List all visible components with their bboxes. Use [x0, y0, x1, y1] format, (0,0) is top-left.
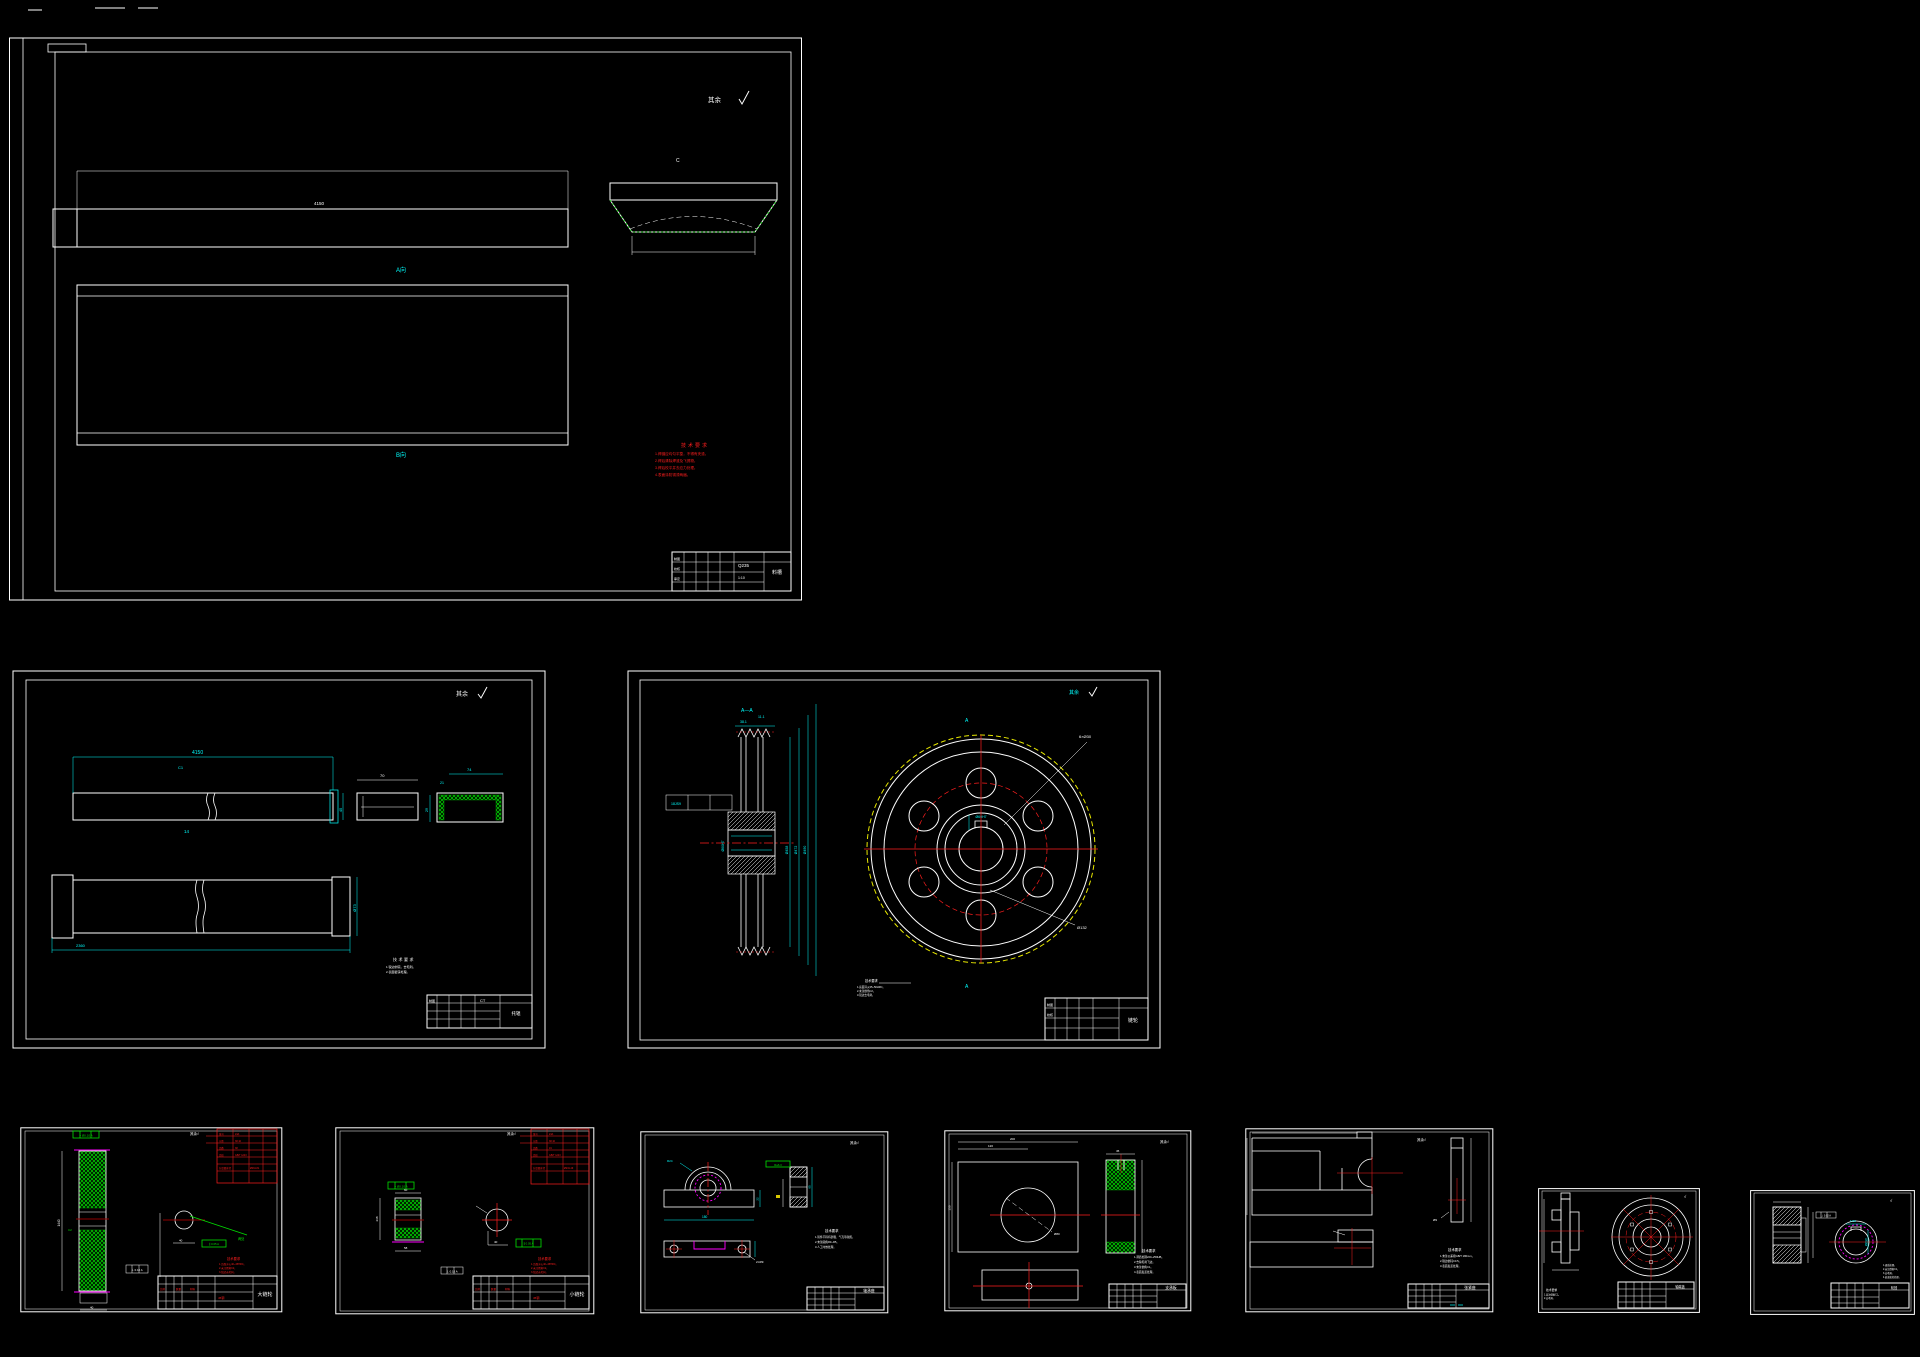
technical-notes: 技术要求 1.锐边倒钝，去毛刺。 2.表面镀锌处理。	[386, 956, 416, 974]
roughness-mark: 其余	[708, 91, 749, 104]
tb-red-field: 比例	[160, 1287, 166, 1291]
tb-field: 审定	[674, 576, 680, 581]
technical-notes: 技术要求 1.铸件不得有砂眼、气孔等缺陷。 2.未注圆角R3~R5。 3.人工时…	[815, 1228, 855, 1249]
sheet-support-plate-drawing[interactable]: 其余√ Ø80 200 120 150 45 技术要求 1.调质处理220~25…	[944, 1130, 1192, 1312]
rim-length-dim: 1440	[57, 1219, 61, 1226]
tech-line: 3.去毛刺。	[1883, 1271, 1894, 1275]
table-cell: 19	[549, 1147, 552, 1150]
hub-callout: Ø132	[1077, 925, 1088, 930]
tech-title: 技术要求	[1448, 1247, 1462, 1252]
front-view: Ø80 200 120 150	[948, 1137, 1091, 1252]
tech-title: 技术要求	[393, 956, 415, 962]
tech-title: 技术要求	[227, 1256, 241, 1261]
tb-red-field: 数量	[176, 1287, 182, 1291]
tb-part-name: 支承板	[1165, 1285, 1177, 1290]
sheet-border	[1539, 1189, 1700, 1313]
table-cell: GB/T 1243	[549, 1154, 561, 1157]
tech-title: 技术要求	[1546, 1288, 1557, 1292]
tolerance-text: ⌖ Ø0.10 A	[79, 1134, 92, 1138]
top-view	[973, 1262, 1083, 1308]
bottom-dim: 40	[90, 1306, 94, 1310]
tb-part-name: 张紧座	[1464, 1285, 1476, 1290]
roughness-frame: Ra6.3	[774, 1163, 782, 1167]
flange-view	[1611, 1195, 1693, 1280]
tech-line: 1.调质处理220~250HB。	[1134, 1255, 1164, 1259]
tech-line: 3.焊后校平并去应力处理。	[655, 465, 698, 470]
pitch-dim: 38.1	[740, 720, 747, 724]
left-dim: 238	[375, 1216, 379, 1221]
tb-material: 45钢	[533, 1295, 539, 1300]
chamfer-note: C2	[68, 1228, 72, 1232]
tb-code: CT	[480, 998, 486, 1003]
tech-line: 4.表面涂防锈漆两遍。	[655, 472, 690, 477]
roughness-label: 其余√	[1417, 1137, 1426, 1142]
tech-line: 1.未注公差按GB/T 1804-m。	[1440, 1254, 1474, 1258]
tech-line: 3.锐边去毛刺。	[219, 1270, 236, 1274]
tb-red-field: 数量	[491, 1287, 497, 1291]
section-view-channel: 74 21 29	[425, 767, 503, 822]
title-block: 制图 校核 链轮	[1045, 998, 1148, 1040]
technical-notes: 技术要求 1.焊缝应均匀平整，不得有夹渣。 2.焊后清除焊渣及飞溅物。 3.焊后…	[655, 442, 709, 477]
table-cell: 齿数	[533, 1146, 538, 1150]
tech-line: 3.表面发蓝处理。	[1440, 1264, 1461, 1268]
tb-part-name: 链轮	[1128, 1017, 1138, 1024]
side-section-view: Ra6.3 65	[766, 1161, 812, 1207]
table-cell: Ø231.49	[564, 1167, 574, 1170]
roughness-label: 其余√	[850, 1140, 859, 1145]
tech-line: 2.未注圆角R3~R5。	[815, 1240, 839, 1244]
technical-notes: 技术要求 1.未注倒角C1。 2.去毛刺。	[1544, 1288, 1560, 1300]
key-dim: 18JS9	[671, 802, 681, 806]
channel-width-dim: 74	[467, 767, 472, 772]
end-view: Ø20H7 6JS9	[1829, 1219, 1886, 1263]
technical-notes: 技术要求 1.未注公差按GB/T 1804-m。 2.锐边倒钝C0.5。 3.表…	[1440, 1247, 1474, 1268]
tb-part-name: 托辊	[512, 1010, 521, 1017]
table-cell: 节距	[219, 1139, 224, 1143]
upper-bar-view: 4150 C1 14 45	[73, 750, 343, 834]
dia-dim-1: Ø458	[785, 846, 789, 855]
sheet-roller-drawing[interactable]: 其余 4150 C1 14 45 70 74 21 29	[12, 670, 546, 1049]
bore-dim: Ø20H7	[1864, 1237, 1868, 1246]
section-view	[1773, 1202, 1813, 1263]
tech-line: 2.锐边倒钝C0.5。	[1440, 1259, 1461, 1263]
hole-callout: 2×Ø9	[756, 1260, 764, 1264]
top-dim: 60	[404, 1188, 408, 1192]
view-label-b: B向	[396, 451, 406, 459]
tb-part-name: 轴端盖	[1675, 1284, 1685, 1289]
hole-dim: Ø80	[1054, 1232, 1060, 1236]
hole-callout: 6×Ø30	[1079, 734, 1092, 739]
front-view: 180 R24 22	[664, 1159, 760, 1220]
tolerance-text: ⊥ 0.02 A	[1821, 1214, 1831, 1218]
sheet-border	[641, 1132, 888, 1313]
tech-line: 1.焊缝应均匀平整，不得有夹渣。	[655, 451, 708, 456]
tb-red-field: 比例	[475, 1287, 481, 1291]
tech-line: 2.未注倒角C2。	[531, 1266, 549, 1270]
technical-notes: 技术要求 1.调质处理220~250HB。 2.去除毛刺飞边。 3.未注倒角C1…	[1134, 1248, 1164, 1274]
table-cell: 齿形	[533, 1153, 538, 1157]
diameter-dim: Ø73	[352, 903, 357, 911]
green-note: 两处	[238, 1236, 245, 1241]
tech-line: 1.齿面淬火45~50HRC。	[857, 985, 885, 989]
sheet-border	[10, 38, 802, 600]
parameter-table: 链号 24A 节距 38.10 齿数 19 齿形 GB/T 1243 分度圆直径…	[520, 1129, 589, 1184]
tech-line: 2.去毛刺。	[1544, 1296, 1555, 1300]
title-block: 轴端盖	[1618, 1282, 1694, 1308]
roughness-mark: 其余	[456, 687, 487, 698]
tb-scale: 1:10	[738, 576, 745, 580]
toothed-rim-section: 1440 C2 40	[57, 1150, 110, 1310]
sheet-sprocket-drawing[interactable]: 其余 A—A 18JS9 Ø60H7 Ø458 Ø472 Ø490 38.1 1…	[627, 670, 1161, 1049]
tooth-dim: 11.1	[758, 715, 765, 719]
chamfer-mark: C1	[178, 765, 184, 770]
tech-line: 2.未注倒角C1。	[1883, 1267, 1899, 1271]
datum-frame: ⊥ 0.10 A	[441, 1267, 463, 1274]
tech-line: 3.人工时效处理。	[815, 1245, 836, 1249]
roughness-label: 其余	[1069, 689, 1079, 696]
mid-dim: 40	[179, 1239, 183, 1243]
table-cell: 38.10	[549, 1140, 556, 1143]
front-view: Ø60H7 6×Ø30 Ø132 A A	[864, 718, 1098, 990]
tolerance-text-2: ∥ 0.05 A	[209, 1242, 219, 1246]
sheet-bearing-pedestal-drawing[interactable]: 其余√ 180 R24 22 Ra6.3 65 2×Ø9	[640, 1131, 889, 1314]
tech-title: 技术要求	[538, 1256, 552, 1261]
tech-line: 4.表面氧化处理。	[1883, 1275, 1901, 1279]
tb-material: Q235	[738, 563, 750, 568]
tolerance-frame: ⊥ 0.02 A	[1816, 1212, 1836, 1218]
tolerance-frame-top: ⌖ Ø0.10 A	[388, 1182, 414, 1189]
height-dim: 45	[338, 807, 343, 812]
title-block: 制图 CT 托辊	[427, 995, 532, 1028]
tolerance-text-3: ⊥ 0.10 A	[446, 1270, 457, 1274]
table-cell: 24A	[235, 1133, 240, 1136]
tech-line: 2.表面镀锌处理。	[386, 969, 410, 974]
flange-dim: 21	[440, 781, 444, 785]
tech-line: 1.未注倒角C1。	[1544, 1293, 1560, 1297]
tb-red-field: 材料	[190, 1287, 196, 1291]
table-cell: 链号	[219, 1132, 224, 1136]
section-arrow-bottom: A	[965, 984, 969, 990]
key-dim: 6JS9	[1850, 1219, 1856, 1223]
tech-title: 技术要求	[681, 442, 709, 449]
dia-dim-2: Ø472	[794, 846, 798, 855]
tech-line: 2.未注倒角C2。	[219, 1266, 237, 1270]
sheet-trough-drawing[interactable]: 其余 4150 A向 B向 C 技术要求 1.焊缝应均匀平整，不得有夹渣。 2.…	[8, 36, 803, 604]
tb-part-name: 料槽	[772, 569, 782, 576]
title-block: 轴承座	[807, 1287, 884, 1310]
tech-title: 技术要求	[1142, 1248, 1156, 1253]
tech-line: 1.齿面淬火40~45HRC。	[219, 1262, 246, 1266]
roughness-mark: 其余	[1069, 687, 1097, 696]
hub-end-view: 40 ∥ 0.05 A	[476, 1203, 541, 1247]
lower-bar-view: Ø73 2360	[52, 875, 357, 953]
tech-line: 3.锐边去毛刺。	[531, 1270, 548, 1274]
mid-dim: 40	[494, 1240, 498, 1244]
table-cell: 38	[235, 1147, 238, 1150]
title-block: 轮毂	[1831, 1283, 1909, 1308]
front-view	[1247, 1132, 1403, 1215]
sheet-border	[628, 671, 1160, 1048]
detail-label: C	[676, 158, 680, 164]
yellow-marker	[776, 1195, 780, 1198]
tb-field: 制图	[429, 998, 435, 1003]
tech-line: 2.焊后清除焊渣及飞溅物。	[655, 458, 698, 463]
thickness-dim: 14	[184, 829, 190, 834]
table-cell: 链号	[533, 1132, 538, 1136]
sheet-tensioner-drawing[interactable]: 其余√ Ø9 技术要求 1.未注公差按GB/T 1804-m。 2.锐边倒钝	[1245, 1128, 1494, 1313]
tech-line: 2.未注倒角C2。	[857, 989, 875, 993]
tech-title: 技术要求	[825, 1228, 839, 1233]
tolerance-text-2: ∥ 0.05 A	[523, 1242, 533, 1246]
tb-field: 制图	[674, 556, 680, 561]
tech-line: 1.调质处理。	[1883, 1263, 1896, 1267]
tb-part-name: 轮毂	[1891, 1285, 1898, 1290]
table-cell: 38.10	[235, 1140, 242, 1143]
sheet-small-sprocket-drawing[interactable]: 其余√ 链号 24A 节距 38.10 齿数 19 齿形 GB/T 1243 分…	[335, 1127, 595, 1315]
tb-part-name: 轴承座	[863, 1288, 875, 1293]
roughness-check: √	[1890, 1198, 1893, 1203]
title-block: 比例 数量 材料 45钢 小链轮	[473, 1276, 589, 1309]
title-block: 比例 数量 材料 45钢 大链轮	[158, 1276, 277, 1309]
trough-section-detail: C	[610, 158, 777, 255]
tb-field: 校核	[674, 566, 680, 571]
width-dim: 70	[380, 773, 385, 778]
tb-part-name: 小链轮	[569, 1291, 584, 1298]
length-dim: 4150	[314, 201, 325, 206]
tech-line: 1.齿面淬火40~45HRC。	[531, 1262, 558, 1266]
sheet-end-cover-drawing[interactable]: √ 技术要求 1.未注倒角C1。 2.去毛刺。	[1538, 1188, 1700, 1313]
table-cell: 节距	[533, 1139, 538, 1143]
sheet-hub-drawing[interactable]: √ ⊥ 0.02 A Ø20H7 6JS9 1.调质处理。 2.未注倒角C1。 …	[1750, 1190, 1915, 1315]
height-dim: 150	[948, 1205, 952, 1210]
tech-line: 2.去除毛刺飞边。	[1134, 1260, 1155, 1264]
table-cell: Ø461.81	[250, 1167, 260, 1170]
table-cell: GB/T 1243	[235, 1154, 247, 1157]
side-view-bar: 4150 A向	[53, 171, 568, 274]
tolerance-frame-top: ⌖ Ø0.10 A	[73, 1131, 99, 1138]
hole-dim: Ø9	[1433, 1218, 1437, 1222]
tech-line: 3.锐边去毛刺。	[857, 993, 875, 997]
technical-notes: 1.调质处理。 2.未注倒角C1。 3.去毛刺。 4.表面氧化处理。	[1883, 1263, 1901, 1279]
roughness-label: 其余	[456, 690, 468, 698]
section-view	[1539, 1193, 1584, 1270]
step-dim: 22	[756, 1197, 760, 1201]
base-dim: 180	[702, 1215, 708, 1219]
center-dim: 120	[988, 1144, 993, 1148]
tb-red-field: 材料	[505, 1287, 511, 1291]
roughness-label: 其余√	[507, 1131, 516, 1136]
roughness-check: √	[1684, 1194, 1687, 1199]
section-arrow-top: A	[965, 718, 969, 724]
thickness-dim: 45	[1116, 1149, 1120, 1153]
length-dim: 4150	[192, 750, 203, 756]
technical-notes: 技术要求 1.齿面淬火40~45HRC。 2.未注倒角C2。 3.锐边去毛刺。	[219, 1256, 246, 1274]
sheet-large-sprocket-drawing[interactable]: ⌖ Ø0.10 A 其余√ 链号 24A 节距 38.10 齿数 38 齿形 G…	[20, 1127, 283, 1313]
tb-material: 45钢	[218, 1295, 224, 1300]
table-cell: 分度圆直径	[533, 1166, 546, 1170]
roughness-label: 其余	[708, 95, 722, 104]
length2-dim: 2360	[76, 943, 86, 948]
tb-field: 校核	[1047, 1012, 1053, 1017]
radius-dim: R24	[667, 1159, 673, 1163]
section-view: A—A 18JS9 Ø60H7 Ø458 Ø472 Ø490 38.1 11.1	[666, 704, 816, 976]
roughness-label: 其余√	[1160, 1139, 1169, 1144]
channel-height-dim: 29	[425, 808, 429, 812]
table-cell: 齿形	[219, 1153, 224, 1157]
tb-field: 制图	[1047, 1002, 1053, 1007]
tech-line: 1.锐边倒钝，去毛刺。	[386, 964, 416, 969]
cad-canvas: 其余 4150 A向 B向 C 技术要求 1.焊缝应均匀平整，不得有夹渣。 2.…	[0, 0, 1920, 1357]
bore-dim: Ø60H7	[721, 840, 725, 851]
sheet-border	[13, 671, 545, 1048]
title-block: 张紧座	[1408, 1284, 1489, 1308]
top-view: 2×Ø9	[664, 1240, 764, 1264]
width-dim: 200	[1010, 1137, 1015, 1141]
section-label: A—A	[741, 708, 753, 714]
canvas-artifact-marks	[0, 0, 200, 20]
top-view-plate: B向	[77, 285, 568, 459]
height-dim: 65	[808, 1185, 812, 1189]
title-block: 支承板	[1109, 1284, 1186, 1308]
section-view-a: 70	[357, 773, 418, 820]
top-view	[1250, 1228, 1373, 1267]
side-view: Ø9	[1433, 1138, 1471, 1222]
parameter-table: 链号 24A 节距 38.10 齿数 38 齿形 GB/T 1243 分度圆直径…	[206, 1129, 277, 1183]
dia-dim-3: Ø490	[803, 846, 807, 855]
technical-notes: 技术要求 1.齿面淬火45~50HRC。 2.未注倒角C2。 3.锐边去毛刺。	[857, 978, 911, 997]
tech-line: 3.未注倒角C1。	[1134, 1265, 1153, 1269]
tech-line: 4.表面发蓝处理。	[1134, 1270, 1155, 1274]
tolerance-text-3: ⊥ 0.10 A	[131, 1268, 142, 1272]
technical-notes: 技术要求 1.齿面淬火40~45HRC。 2.未注倒角C2。 3.锐边去毛刺。	[531, 1256, 558, 1274]
table-cell: 齿数	[219, 1146, 224, 1150]
roughness-label: 其余√	[190, 1131, 199, 1136]
datum-frame: ⊥ 0.10 A	[126, 1265, 148, 1273]
table-cell: 分度圆直径	[219, 1166, 232, 1170]
tb-part-name: 大链轮	[257, 1291, 272, 1298]
tech-line: 1.铸件不得有砂眼、气孔等缺陷。	[815, 1235, 855, 1239]
tech-title: 技术要求	[865, 978, 879, 983]
bottom-dim: 58	[404, 1246, 408, 1250]
side-section-view: 45	[1101, 1149, 1142, 1253]
view-label-a: A向	[396, 266, 406, 274]
table-cell: 24A	[549, 1133, 554, 1136]
toothed-rim-section: 60 238 58	[375, 1188, 424, 1251]
title-block: 制图 校核 审定 Q235 1:10 料槽	[672, 552, 791, 591]
